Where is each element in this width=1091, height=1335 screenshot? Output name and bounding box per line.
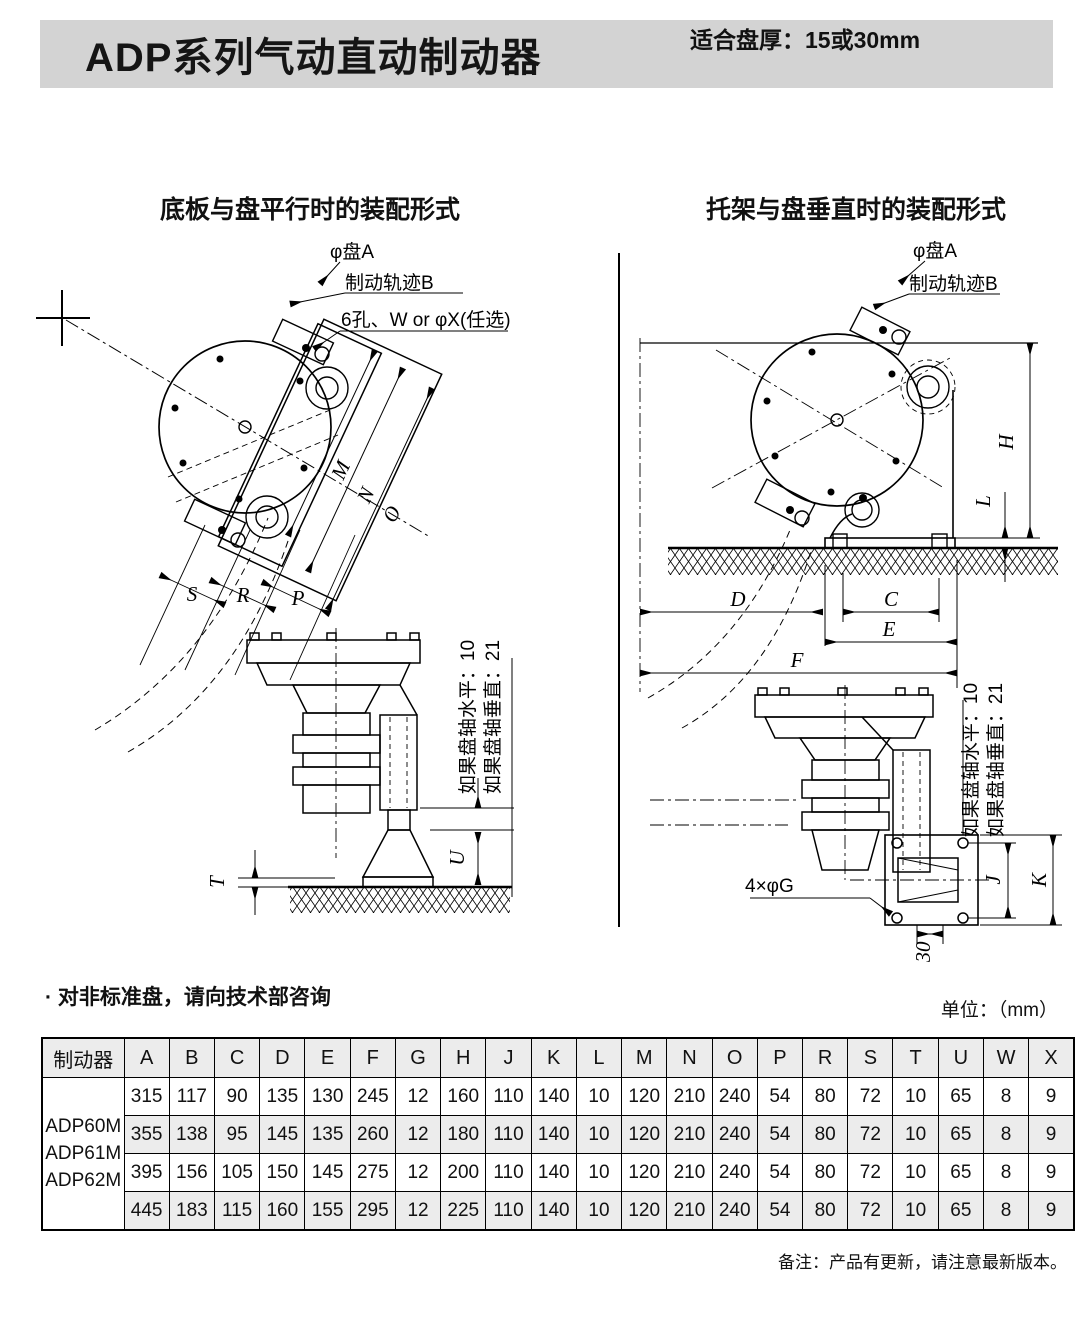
table-row: 3951561051501452751220011014010120210240… — [42, 1154, 1074, 1192]
cell-M-row3: 120 — [622, 1154, 667, 1192]
col-header-brake: 制动器 — [42, 1038, 124, 1078]
col-header-F: F — [350, 1038, 395, 1078]
cell-W-row2: 8 — [983, 1116, 1028, 1154]
caliper-assembly — [185, 319, 442, 601]
label-brake-track-b: 制动轨迹B — [909, 273, 998, 295]
cell-A-row2: 355 — [124, 1116, 169, 1154]
cell-H-row3: 200 — [441, 1154, 486, 1192]
col-header-T: T — [893, 1038, 938, 1078]
cell-X-row2: 9 — [1029, 1116, 1074, 1154]
cell-L-row2: 10 — [576, 1116, 621, 1154]
col-header-E: E — [305, 1038, 350, 1078]
cell-U-row2: 65 — [938, 1116, 983, 1154]
dim-label-f: F — [790, 648, 804, 672]
dim-label-j: J — [981, 874, 1005, 885]
cell-O-row1: 240 — [712, 1078, 757, 1116]
left-diagram: φ盘A 制动轨迹B 6孔、W or φX(任选) M N O S R P — [36, 241, 514, 915]
unit-note: 单位：（mm） — [880, 995, 1058, 1022]
cell-N-row1: 210 — [667, 1078, 712, 1116]
cell-N-row4: 210 — [667, 1192, 712, 1231]
dim-label-l: L — [971, 495, 995, 508]
cell-N-row3: 210 — [667, 1154, 712, 1192]
col-header-S: S — [848, 1038, 893, 1078]
dim-label-p: P — [291, 586, 305, 610]
label-bolt-holes: 4×φG — [745, 876, 794, 897]
cell-D-row1: 135 — [260, 1078, 305, 1116]
cell-W-row4: 8 — [983, 1192, 1028, 1231]
col-header-M: M — [622, 1038, 667, 1078]
cell-J-row1: 110 — [486, 1078, 531, 1116]
diagram-title-left: 底板与盘平行时的装配形式 — [160, 190, 460, 226]
cell-G-row2: 12 — [395, 1116, 440, 1154]
cell-T-row3: 10 — [893, 1154, 938, 1192]
brake-disc — [95, 341, 338, 752]
cell-P-row4: 54 — [757, 1192, 802, 1231]
dim-label-n: N — [351, 483, 380, 508]
cell-M-row2: 120 — [622, 1116, 667, 1154]
cell-F-row1: 245 — [350, 1078, 395, 1116]
cell-T-row4: 10 — [893, 1192, 938, 1231]
cell-K-row1: 140 — [531, 1078, 576, 1116]
cell-X-row1: 9 — [1029, 1078, 1074, 1116]
axis-horizontal-note: 如果盘轴水平：10 — [960, 683, 982, 837]
diagram-title-right: 托架与盘垂直时的装配形式 — [706, 190, 1006, 226]
cell-F-row4: 295 — [350, 1192, 395, 1231]
label-brake-track-b: 制动轨迹B — [345, 272, 434, 294]
cell-R-row4: 80 — [803, 1192, 848, 1231]
cell-C-row1: 90 — [214, 1078, 259, 1116]
disc-thickness-value: 15或30mm — [805, 27, 920, 53]
cell-T-row2: 10 — [893, 1116, 938, 1154]
col-header-R: R — [803, 1038, 848, 1078]
col-header-N: N — [667, 1038, 712, 1078]
cell-E-row3: 145 — [305, 1154, 350, 1192]
axis-vertical-note: 如果盘轴垂直：21 — [985, 683, 1007, 837]
dim-label-r: R — [236, 583, 250, 607]
cell-A-row1: 315 — [124, 1078, 169, 1116]
cell-C-row3: 105 — [214, 1154, 259, 1192]
cell-E-row2: 135 — [305, 1116, 350, 1154]
cell-R-row2: 80 — [803, 1116, 848, 1154]
table-header-row: 制动器ABCDEFGHJKLMNOPRSTUWX — [42, 1038, 1074, 1078]
cell-B-row2: 138 — [169, 1116, 214, 1154]
cell-M-row1: 120 — [622, 1078, 667, 1116]
cell-P-row3: 54 — [757, 1154, 802, 1192]
dim-label-o: O — [378, 502, 406, 526]
cell-J-row2: 110 — [486, 1116, 531, 1154]
axis-horizontal-note: 如果盘轴水平：10 — [457, 640, 479, 794]
col-header-B: B — [169, 1038, 214, 1078]
col-header-U: U — [938, 1038, 983, 1078]
col-header-W: W — [983, 1038, 1028, 1078]
cell-R-row3: 80 — [803, 1154, 848, 1192]
disc-thickness-note: 适合盘厚：15或30mm — [690, 21, 920, 55]
cell-O-row2: 240 — [712, 1116, 757, 1154]
cell-K-row3: 140 — [531, 1154, 576, 1192]
table-row: 4451831151601552951222511014010120210240… — [42, 1192, 1074, 1231]
cell-O-row4: 240 — [712, 1192, 757, 1231]
cell-L-row1: 10 — [576, 1078, 621, 1116]
cell-W-row1: 8 — [983, 1078, 1028, 1116]
col-header-D: D — [260, 1038, 305, 1078]
cell-D-row3: 150 — [260, 1154, 305, 1192]
cell-K-row2: 140 — [531, 1116, 576, 1154]
col-header-P: P — [757, 1038, 802, 1078]
cell-L-row3: 10 — [576, 1154, 621, 1192]
cell-N-row2: 210 — [667, 1116, 712, 1154]
model-name: ADP61M — [43, 1140, 124, 1167]
cell-X-row3: 9 — [1029, 1154, 1074, 1192]
cell-D-row4: 160 — [260, 1192, 305, 1231]
cell-M-row4: 120 — [622, 1192, 667, 1231]
col-header-K: K — [531, 1038, 576, 1078]
table-row: ADP60MADP61MADP62M3151179013513024512160… — [42, 1078, 1074, 1116]
right-side-view — [650, 685, 990, 925]
cell-G-row3: 12 — [395, 1154, 440, 1192]
nonstandard-disc-note: · 对非标准盘，请向技术部咨询 — [45, 981, 331, 1011]
cell-S-row1: 72 — [848, 1078, 893, 1116]
cell-L-row4: 10 — [576, 1192, 621, 1231]
cell-C-row2: 95 — [214, 1116, 259, 1154]
dim-label-u: U — [445, 849, 469, 866]
disc-thickness-label: 适合盘厚： — [690, 27, 805, 53]
technical-drawings: φ盘A 制动轨迹B 6孔、W or φX(任选) M N O S R P — [0, 230, 1091, 962]
col-header-J: J — [486, 1038, 531, 1078]
cell-C-row4: 115 — [214, 1192, 259, 1231]
dimension-table: 制动器ABCDEFGHJKLMNOPRSTUWX ADP60MADP61MADP… — [41, 1037, 1075, 1231]
dim-label-e: E — [882, 617, 896, 641]
cell-W-row3: 8 — [983, 1154, 1028, 1192]
model-name: ADP60M — [43, 1113, 124, 1140]
table-row: 3551389514513526012180110140101202102405… — [42, 1116, 1074, 1154]
cell-A-row3: 395 — [124, 1154, 169, 1192]
cell-B-row4: 183 — [169, 1192, 214, 1231]
cell-P-row2: 54 — [757, 1116, 802, 1154]
cell-X-row4: 9 — [1029, 1192, 1074, 1231]
cell-U-row1: 65 — [938, 1078, 983, 1116]
col-header-G: G — [395, 1038, 440, 1078]
cell-A-row4: 445 — [124, 1192, 169, 1231]
label-holes: 6孔、W or φX(任选) — [341, 309, 511, 331]
cell-B-row3: 156 — [169, 1154, 214, 1192]
col-header-C: C — [214, 1038, 259, 1078]
col-header-L: L — [576, 1038, 621, 1078]
page-title: ADP系列气动直动制动器 — [85, 25, 541, 83]
cell-H-row4: 225 — [441, 1192, 486, 1231]
cell-K-row4: 140 — [531, 1192, 576, 1231]
col-header-O: O — [712, 1038, 757, 1078]
dim-label-d: D — [729, 587, 745, 611]
cell-E-row4: 155 — [305, 1192, 350, 1231]
label-disc-a: φ盘A — [913, 240, 957, 262]
dim-label-30: 30 — [911, 941, 935, 962]
cell-H-row1: 160 — [441, 1078, 486, 1116]
cell-O-row3: 240 — [712, 1154, 757, 1192]
cell-H-row2: 180 — [441, 1116, 486, 1154]
remark-note: 备注：产品有更新，请注意最新版本。 — [590, 1248, 1067, 1273]
cell-F-row2: 260 — [350, 1116, 395, 1154]
cell-R-row1: 80 — [803, 1078, 848, 1116]
dim-label-h: H — [994, 433, 1018, 451]
model-names-cell: ADP60MADP61MADP62M — [42, 1078, 124, 1231]
axis-vertical-note: 如果盘轴垂直：21 — [482, 640, 504, 794]
model-name: ADP62M — [43, 1167, 124, 1194]
dim-label-t: T — [205, 875, 229, 888]
cell-G-row4: 12 — [395, 1192, 440, 1231]
cell-B-row1: 117 — [169, 1078, 214, 1116]
cell-P-row1: 54 — [757, 1078, 802, 1116]
col-header-H: H — [441, 1038, 486, 1078]
cell-U-row3: 65 — [938, 1154, 983, 1192]
right-side-dims — [750, 700, 1062, 944]
cell-D-row2: 145 — [260, 1116, 305, 1154]
label-disc-a: φ盘A — [330, 241, 374, 263]
dims-h-l — [955, 343, 1040, 582]
dim-label-s: S — [187, 582, 198, 606]
dim-lines-mno — [288, 350, 432, 610]
cell-S-row3: 72 — [848, 1154, 893, 1192]
cell-G-row1: 12 — [395, 1078, 440, 1116]
cell-U-row4: 65 — [938, 1192, 983, 1231]
col-header-X: X — [1029, 1038, 1074, 1078]
cell-J-row3: 110 — [486, 1154, 531, 1192]
right-diagram: φ盘A 制动轨迹B H L D C E F — [640, 240, 1062, 962]
col-header-A: A — [124, 1038, 169, 1078]
cell-J-row4: 110 — [486, 1192, 531, 1231]
dim-label-c: C — [884, 587, 899, 611]
dim-label-k: K — [1027, 872, 1051, 888]
cell-S-row2: 72 — [848, 1116, 893, 1154]
cell-T-row1: 10 — [893, 1078, 938, 1116]
cell-F-row3: 275 — [350, 1154, 395, 1192]
cell-S-row4: 72 — [848, 1192, 893, 1231]
cell-E-row1: 130 — [305, 1078, 350, 1116]
